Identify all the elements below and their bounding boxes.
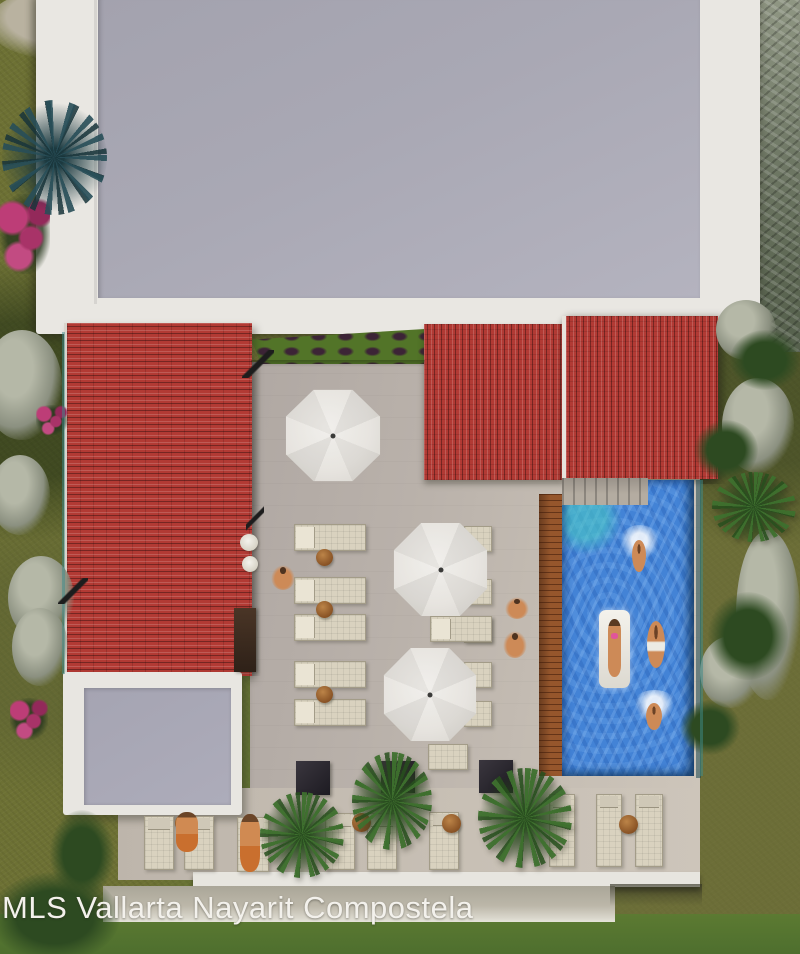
sun-lounger xyxy=(635,794,663,867)
watermark-text: MLS Vallarta Nayarit Compostela xyxy=(0,890,800,926)
person-standing xyxy=(505,597,529,619)
sun-lounger xyxy=(430,616,492,642)
pole-shadow xyxy=(246,505,264,531)
sun-lounger xyxy=(294,699,366,726)
rock-patch xyxy=(0,455,50,535)
sun-lounger xyxy=(294,577,366,604)
shrub xyxy=(50,810,114,898)
patio-umbrella xyxy=(382,646,478,743)
side-table xyxy=(316,686,333,703)
person-sunbathing xyxy=(176,812,198,852)
person-sunbathing xyxy=(240,814,260,872)
rock-patch xyxy=(12,608,68,686)
pink-flower-bed xyxy=(10,698,48,740)
pool-chair xyxy=(242,556,258,572)
glass-railing xyxy=(62,332,65,674)
side-table xyxy=(619,815,638,834)
shrub xyxy=(730,330,800,390)
side-table xyxy=(316,549,333,566)
palm-tree xyxy=(712,472,796,542)
side-table xyxy=(316,601,333,618)
dark-planter xyxy=(296,761,330,795)
pool-swimmer xyxy=(640,698,668,734)
aerial-render: MLS Vallarta Nayarit Compostela xyxy=(0,0,800,954)
pool-chair xyxy=(240,534,258,551)
scene-items xyxy=(0,0,800,954)
pool-swimmer xyxy=(640,612,672,674)
palm-tree xyxy=(478,768,572,868)
palm-tree xyxy=(352,752,432,850)
shrub xyxy=(708,592,788,680)
pole-shadow xyxy=(242,350,274,378)
person-standing xyxy=(503,631,527,658)
shrub xyxy=(694,420,758,480)
pool-swimmer xyxy=(626,534,652,576)
sun-lounger xyxy=(596,794,622,867)
bar-counter xyxy=(234,608,256,672)
patio-umbrella xyxy=(284,388,382,483)
sun-lounger xyxy=(294,661,366,688)
pool-steps xyxy=(562,478,648,505)
sun-lounger xyxy=(294,524,366,551)
sun-lounger xyxy=(428,744,468,770)
pool-float-with-person xyxy=(599,610,630,688)
glass-railing xyxy=(700,480,703,776)
side-table xyxy=(442,814,461,833)
palm-tree xyxy=(2,100,107,215)
palm-tree xyxy=(260,792,344,878)
person-standing xyxy=(271,565,295,590)
sun-lounger xyxy=(294,614,366,641)
pole-shadow xyxy=(58,578,88,604)
sun-lounger xyxy=(144,816,174,870)
shrub xyxy=(680,700,740,755)
